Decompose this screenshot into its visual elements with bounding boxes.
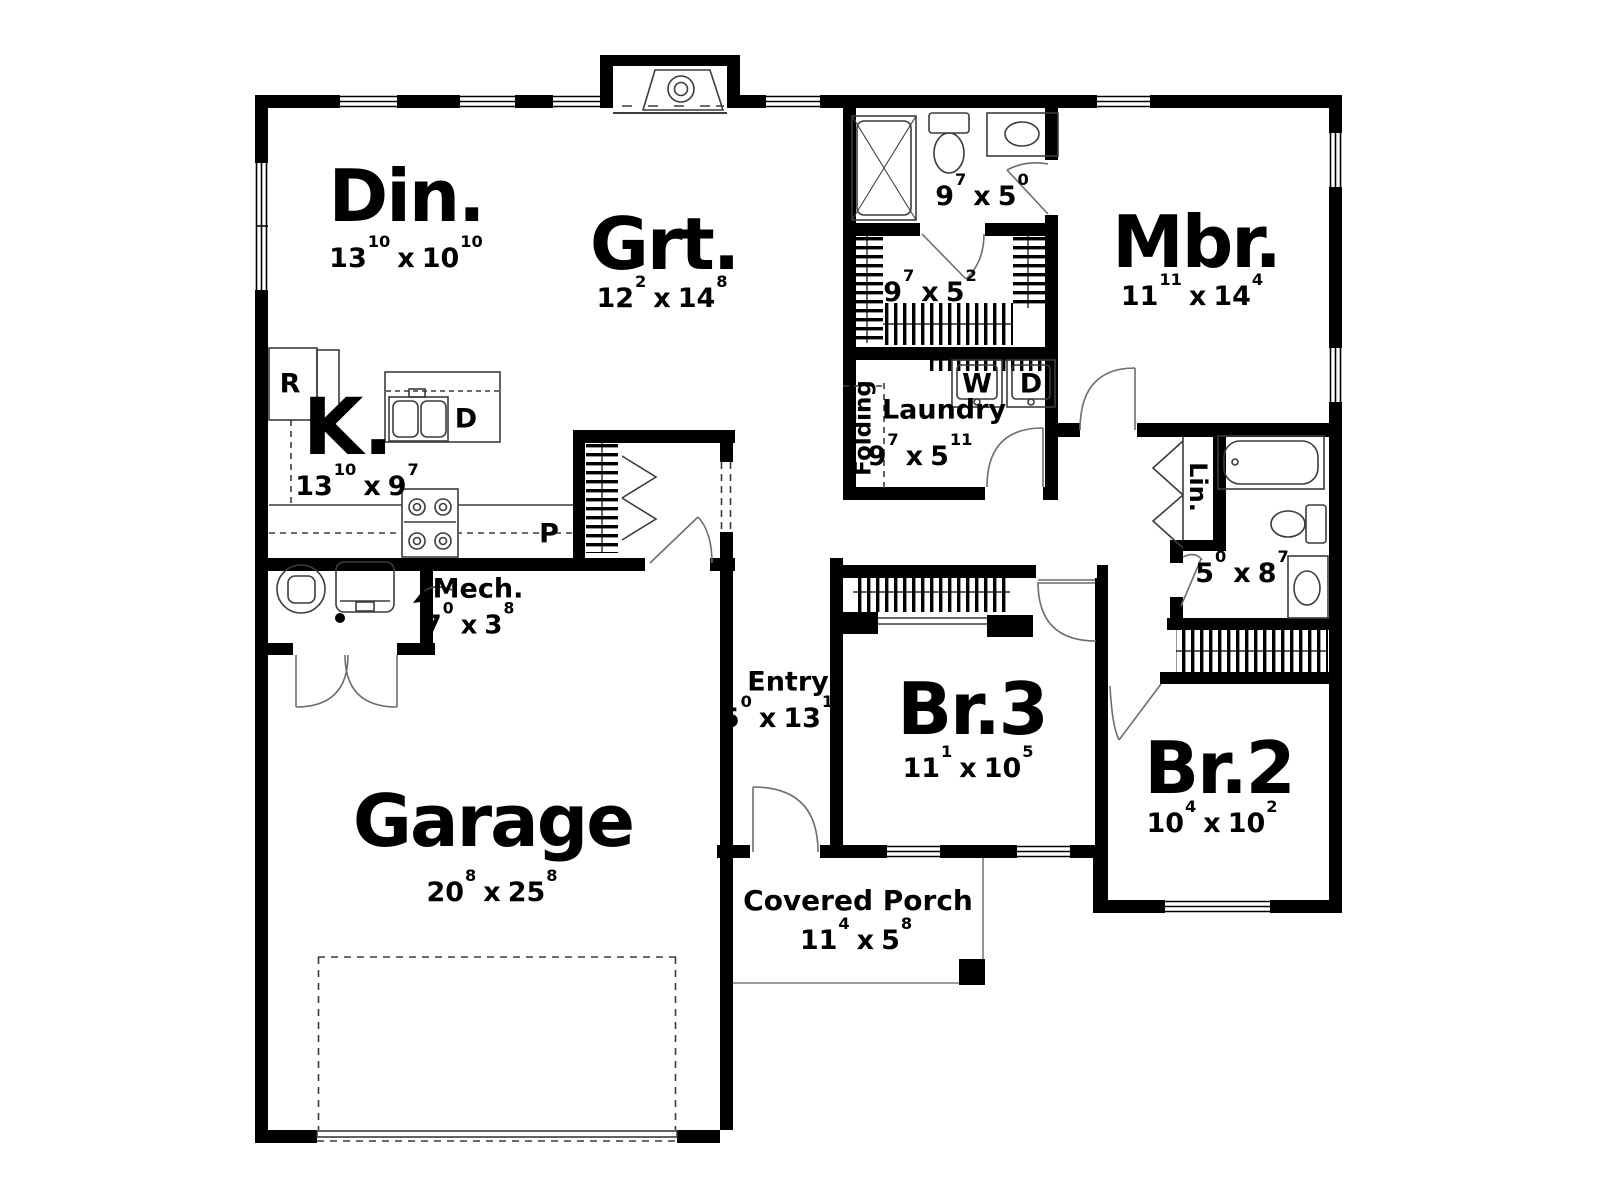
island-sink-icon <box>385 372 500 442</box>
label-br3: Br.3 <box>897 673 1047 745</box>
label-entry: Entry <box>747 669 829 696</box>
dim-entry: 50x131 <box>721 704 833 732</box>
dim-din: 1310x1010 <box>329 244 483 272</box>
label-grt: Grt. <box>590 208 738 280</box>
front-door <box>753 787 818 852</box>
bathtub-icon <box>1218 436 1324 489</box>
label-mbr: Mbr. <box>1112 206 1280 278</box>
br3-closet-doors <box>878 618 987 624</box>
dim-mech: 70x38 <box>424 612 515 639</box>
shower-icon <box>852 116 916 220</box>
porch-outline <box>733 858 983 983</box>
dim-kitchen: 1310x97 <box>295 472 419 500</box>
dim-hallbath: 50x87 <box>1195 559 1289 587</box>
floor-plan-linework <box>0 0 1600 1200</box>
label-kitchen: K. <box>303 389 393 467</box>
label-washer: W <box>962 371 992 398</box>
water-heater-icon <box>277 565 325 613</box>
dim-porch: 114x58 <box>800 926 912 954</box>
laundry-door <box>987 428 1043 487</box>
br3-door <box>1038 580 1096 641</box>
label-din: Din. <box>328 160 483 232</box>
dim-wic: 97x52 <box>883 278 977 306</box>
toilet2-icon <box>1271 505 1326 543</box>
mech-double-doors <box>296 655 397 707</box>
mbr-door <box>1080 368 1135 430</box>
dim-laundry: 97x511 <box>868 442 973 470</box>
dim-grt: 122x148 <box>596 284 727 312</box>
floor-drain-dot <box>335 613 345 623</box>
garage-door <box>317 957 677 1141</box>
label-garage: Garage <box>353 785 633 857</box>
dim-br3: 111x105 <box>902 754 1033 782</box>
label-fridge: R <box>280 371 301 398</box>
dim-mbr: 1111x144 <box>1121 282 1263 310</box>
label-laundry: Laundry <box>882 397 1006 424</box>
vanity2-sink-icon <box>1288 556 1328 618</box>
label-pantry: P <box>539 521 559 548</box>
label-porch: Covered Porch <box>743 887 973 915</box>
label-linen: Lin. <box>1186 462 1210 512</box>
label-br2: Br.2 <box>1144 732 1294 804</box>
dim-garage: 208x258 <box>426 878 557 906</box>
toilet-icon <box>929 113 969 173</box>
coat-closet-bifold-icon <box>622 456 656 540</box>
label-dryer: D <box>1020 371 1042 398</box>
floor-plan: Din. 1310x1010 Grt. 122x148 Mbr. 1111x14… <box>0 0 1600 1200</box>
dim-mbath: 97x50 <box>935 182 1029 210</box>
dim-br2: 104x102 <box>1146 809 1277 837</box>
porch-post <box>959 959 985 985</box>
linen-bifold-icon <box>1153 437 1183 548</box>
label-mech: Mech. <box>433 576 524 603</box>
label-folding: Folding <box>853 380 876 476</box>
label-dishwasher: D <box>455 406 477 433</box>
garage-entry-door <box>650 517 712 563</box>
